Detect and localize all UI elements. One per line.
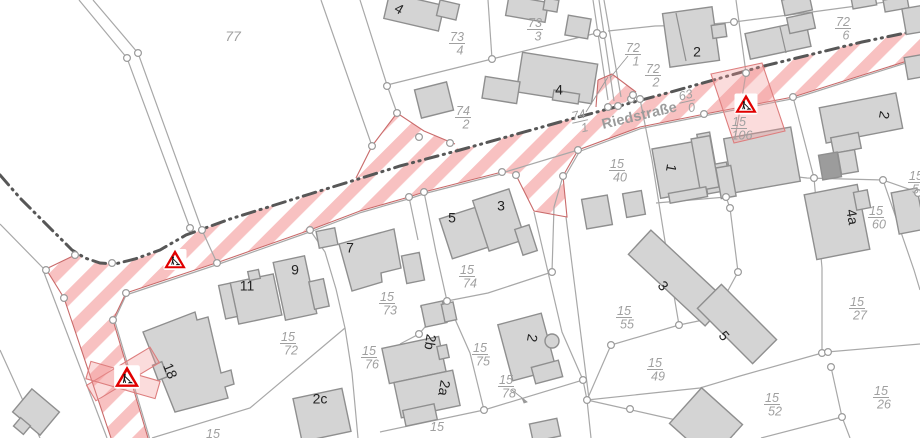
svg-text:59: 59 [912, 183, 920, 197]
svg-text:73: 73 [450, 30, 464, 44]
svg-text:27: 27 [852, 309, 868, 323]
svg-text:3: 3 [497, 198, 505, 214]
svg-text:15: 15 [610, 157, 624, 171]
svg-text:26: 26 [876, 398, 891, 412]
svg-text:55: 55 [620, 318, 634, 332]
svg-text:73: 73 [528, 16, 542, 30]
svg-text:2: 2 [652, 76, 660, 90]
svg-text:49: 49 [651, 370, 665, 384]
svg-text:4a: 4a [843, 208, 861, 226]
svg-text:77: 77 [225, 28, 242, 44]
svg-text:2b: 2b [421, 333, 439, 351]
svg-text:72: 72 [284, 344, 298, 358]
svg-text:5: 5 [448, 210, 456, 226]
svg-text:78: 78 [502, 387, 516, 401]
svg-text:15: 15 [874, 384, 888, 398]
svg-text:1: 1 [633, 55, 640, 69]
svg-text:15: 15 [648, 356, 662, 370]
svg-text:15: 15 [460, 263, 474, 277]
svg-text:76: 76 [365, 358, 379, 372]
svg-text:2c: 2c [313, 391, 328, 407]
svg-text:60: 60 [872, 218, 886, 232]
svg-text:15: 15 [869, 204, 883, 218]
svg-text:4: 4 [555, 82, 563, 98]
svg-text:106: 106 [732, 129, 753, 143]
svg-text:72: 72 [836, 15, 850, 29]
svg-text:4: 4 [457, 44, 464, 58]
svg-text:72: 72 [646, 62, 660, 76]
svg-text:11: 11 [240, 278, 255, 294]
svg-text:15: 15 [499, 373, 513, 387]
svg-text:15: 15 [765, 391, 779, 405]
svg-text:2: 2 [693, 44, 701, 60]
svg-text:15: 15 [281, 330, 295, 344]
svg-text:75: 75 [476, 355, 490, 369]
svg-text:15: 15 [732, 115, 746, 129]
svg-text:15: 15 [380, 290, 394, 304]
svg-text:40: 40 [613, 171, 627, 185]
svg-text:15: 15 [206, 427, 220, 438]
svg-text:52: 52 [768, 405, 782, 419]
svg-text:15: 15 [617, 304, 631, 318]
svg-text:2a: 2a [435, 379, 453, 397]
svg-text:74: 74 [456, 104, 470, 118]
svg-text:15: 15 [850, 295, 864, 309]
svg-text:3: 3 [535, 30, 542, 44]
svg-text:9: 9 [291, 262, 299, 278]
svg-text:72: 72 [626, 41, 640, 55]
svg-text:73: 73 [383, 304, 397, 318]
svg-text:6: 6 [843, 29, 850, 43]
svg-text:15: 15 [473, 341, 487, 355]
svg-text:7: 7 [346, 240, 354, 256]
svg-text:74: 74 [463, 277, 477, 291]
svg-text:2: 2 [462, 118, 470, 132]
svg-text:15: 15 [909, 169, 920, 183]
svg-text:15: 15 [362, 344, 376, 358]
svg-text:15: 15 [430, 420, 444, 434]
